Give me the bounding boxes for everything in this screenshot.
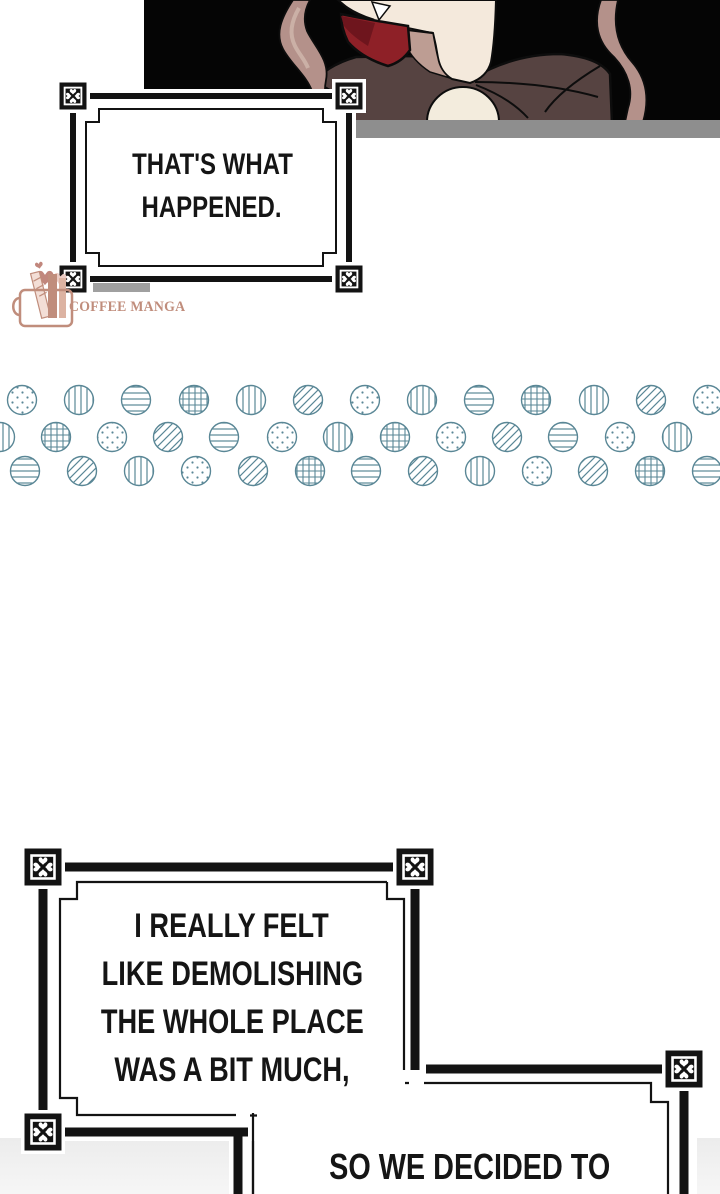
dialogue-line: LIKE DEMOLISHING (101, 950, 362, 998)
dialogue-line: SO WE DECIDED TO (329, 1143, 610, 1191)
corner-ornament-icon (332, 79, 366, 113)
speech-box-3-text: SO WE DECIDED TO (260, 1143, 680, 1191)
corner-ornament-icon (56, 79, 90, 113)
dialogue-line: HAPPENED. (142, 186, 282, 229)
corner-ornament-icon (662, 1047, 706, 1091)
circle-pattern-divider (0, 386, 720, 486)
dialogue-line: THE WHOLE PLACE (101, 998, 364, 1046)
corner-ornament-icon (21, 1110, 65, 1154)
dialogue-line: WAS A BIT MUCH, (114, 1046, 349, 1094)
corner-ornament-icon (21, 845, 65, 889)
corner-ornament-icon (393, 845, 437, 889)
dialogue-line: THAT'S WHAT (132, 143, 293, 186)
speech-box-2-text: I REALLY FELT LIKE DEMOLISHING THE WHOLE… (58, 893, 406, 1103)
speech-box-1-text: THAT'S WHAT HAPPENED. (84, 112, 340, 260)
webtoon-page: THAT'S WHAT HAPPENED. I REALLY FELT LIKE… (0, 0, 720, 1194)
watermark-text: COFFEE MANGA (69, 299, 185, 316)
watermark-gray-bar (93, 283, 150, 292)
dialogue-line: I REALLY FELT (135, 902, 329, 950)
corner-ornament-icon (332, 262, 366, 296)
